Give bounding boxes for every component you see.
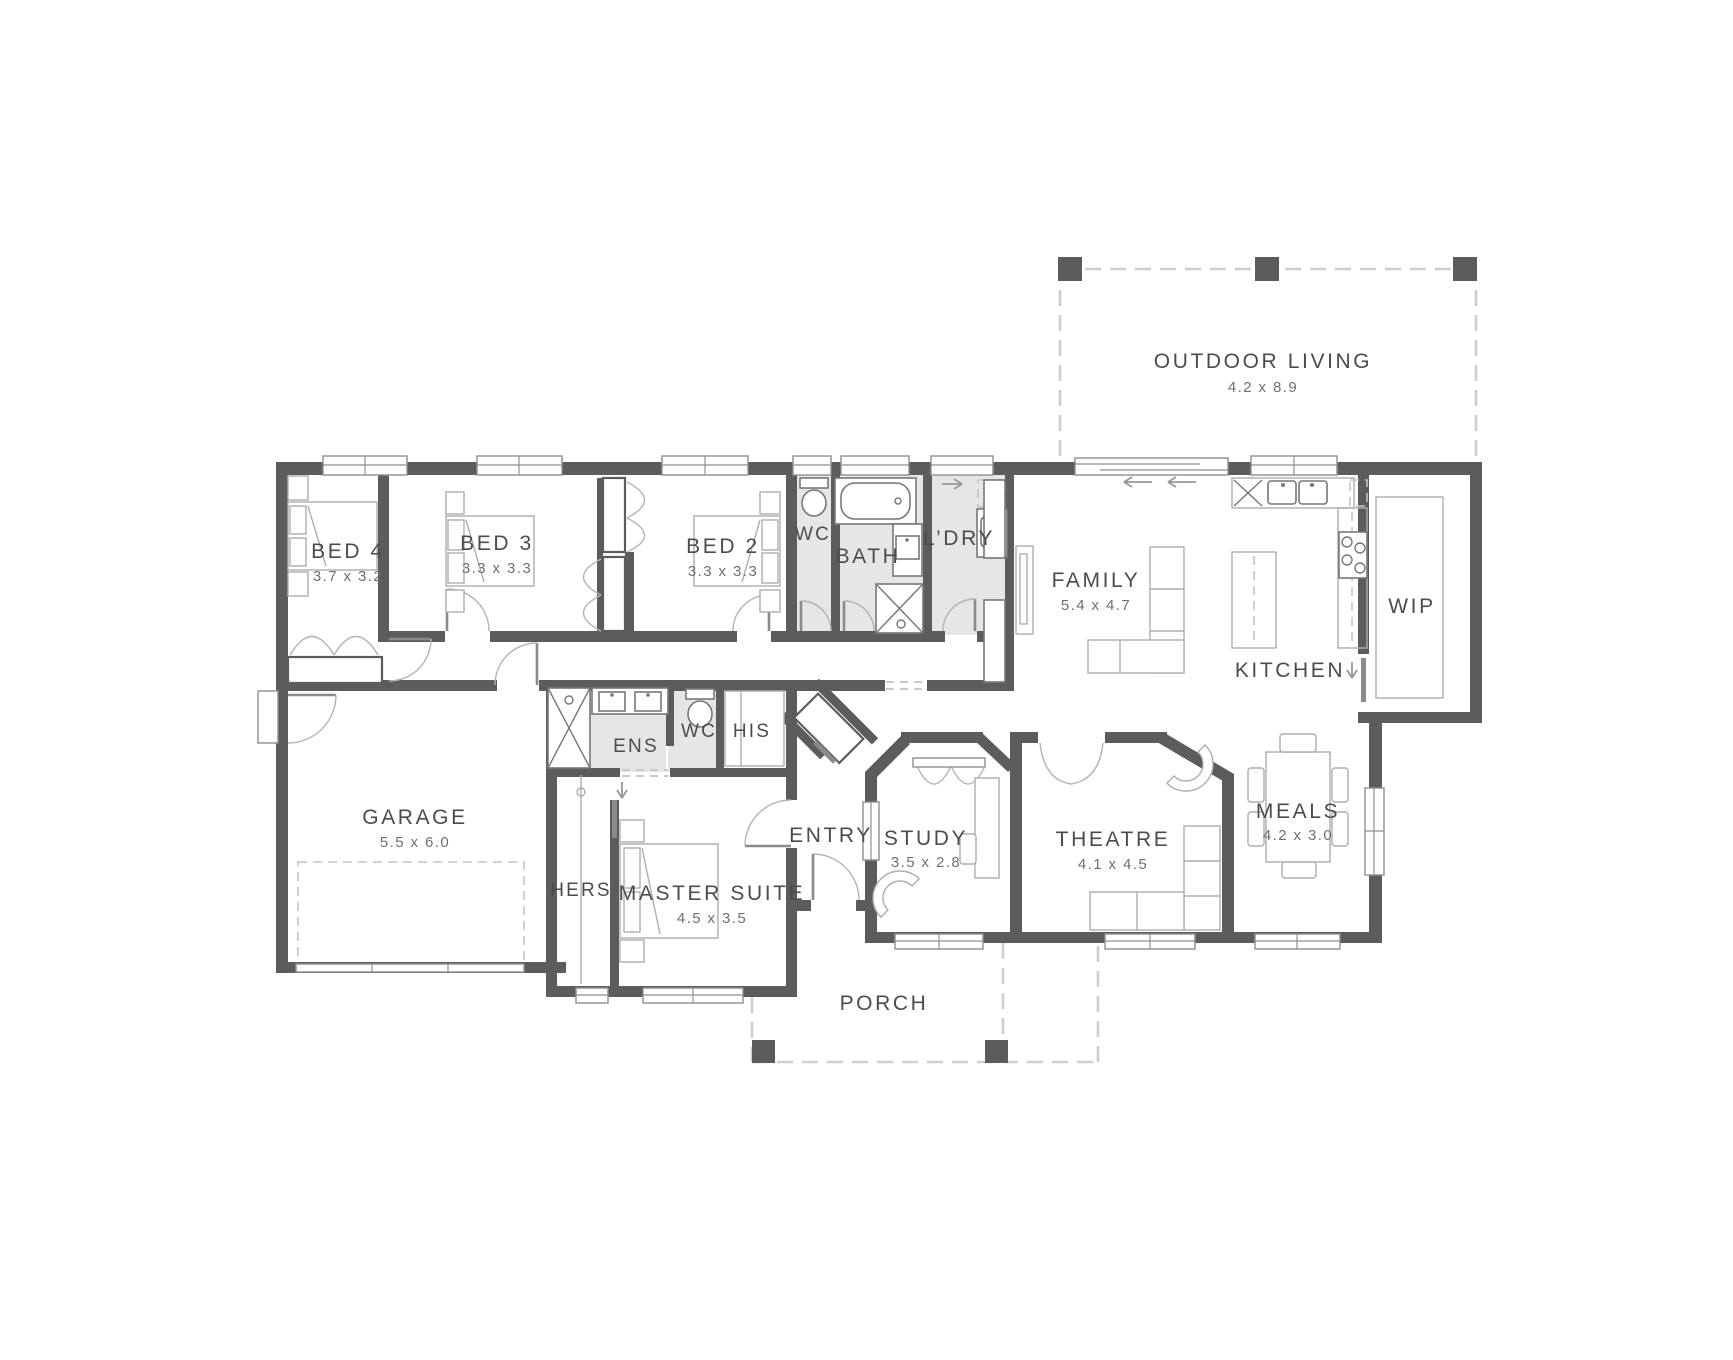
door-hers-slider [612, 800, 617, 838]
room-label-garage: GARAGE [362, 806, 467, 829]
room-dims-bed2: 3.3 x 3.3 [688, 563, 758, 580]
toilet-main [800, 478, 828, 516]
room-label-his: HIS [733, 721, 771, 742]
door-wip-slider [1361, 658, 1366, 702]
master-entry-arrow [617, 782, 627, 798]
window-master [643, 988, 743, 1003]
room-label-family: FAMILY [1052, 569, 1141, 592]
window-bed2 [662, 456, 748, 475]
room-label-bed4: BED 4 [311, 540, 385, 563]
room-dims-family: 5.4 x 4.7 [1061, 597, 1131, 614]
room-label-theatre: THEATRE [1056, 828, 1171, 851]
window-bed4 [323, 456, 407, 475]
bifold-bed2-robe [627, 482, 645, 552]
window-study [895, 934, 983, 949]
window-hers [576, 988, 608, 1003]
window-laundry [931, 456, 993, 475]
study-bay-sill [913, 758, 985, 767]
room-label-bed3: BED 3 [460, 532, 534, 555]
room-label-meals: MEALS [1256, 800, 1340, 823]
room-label-ens: ENS [613, 736, 659, 757]
cooktop [1339, 532, 1367, 578]
room-label-hers: HERS [550, 880, 612, 901]
floor-plan-canvas: OUTDOOR LIVING 4.2 x 8.9 BED 4 3.7 x 3.2… [0, 0, 1733, 1360]
door-front [813, 854, 859, 900]
bathtub [835, 478, 916, 524]
kitchen-island [1232, 552, 1276, 648]
room-label-wc-main: WC [795, 524, 831, 545]
room-label-study: STUDY [884, 827, 968, 850]
stacker-door-family [1075, 458, 1228, 487]
window-bath [841, 456, 909, 475]
garage-door [296, 964, 524, 972]
room-label-outdoor-living: OUTDOOR LIVING [1154, 350, 1372, 373]
room-dims-meals: 4.2 x 3.0 [1263, 827, 1333, 844]
wip-entry-arrow [1347, 662, 1357, 678]
room-dims-bed4: 3.7 x 3.2 [313, 568, 383, 585]
floor-plan: OUTDOOR LIVING 4.2 x 8.9 BED 4 3.7 x 3.2… [0, 0, 1733, 1360]
window-kitchen [1251, 456, 1337, 475]
room-label-bed2: BED 2 [686, 535, 760, 558]
bath-shower [876, 584, 923, 633]
room-label-wc-ens: WC [681, 721, 717, 742]
room-dims-theatre: 4.1 x 4.5 [1078, 856, 1148, 873]
ens-vanity [592, 688, 668, 714]
door-master [745, 800, 791, 846]
room-label-master: MASTER SUITE [619, 882, 805, 905]
door-garage-side [258, 691, 336, 743]
room-dims-garage: 5.5 x 6.0 [380, 834, 450, 851]
door-bed4 [389, 639, 431, 681]
window-bed3 [477, 456, 562, 475]
window-meals [1365, 788, 1384, 875]
room-label-bath: BATH [836, 545, 901, 568]
room-dims-study: 3.5 x 2.8 [891, 854, 961, 871]
post [985, 1040, 1008, 1063]
garage-car-space [298, 862, 524, 968]
broom-cupboard [984, 600, 1005, 682]
door-garage-hall [495, 643, 537, 685]
post [1058, 257, 1082, 281]
room-dims-bed3: 3.3 x 3.3 [462, 560, 532, 577]
family-tv-unit [1016, 546, 1033, 634]
room-dims-outdoor-living: 4.2 x 8.9 [1228, 379, 1298, 396]
window-theatre-1 [1105, 934, 1195, 949]
room-label-porch: PORCH [840, 992, 929, 1015]
room-label-wip: WIP [1388, 595, 1435, 618]
post [1255, 257, 1279, 281]
bifold-bed4-robe [290, 637, 378, 656]
room-label-entry: ENTRY [789, 824, 873, 847]
window-wc [793, 456, 831, 475]
door-theatre-double [1040, 743, 1103, 784]
room-dims-master: 4.5 x 3.5 [677, 910, 747, 927]
ens-shower [548, 688, 590, 768]
room-label-laundry: L’DRY [923, 527, 995, 550]
post [752, 1040, 775, 1063]
room-label-kitchen: KITCHEN [1235, 659, 1345, 682]
window-theatre-2 [1255, 934, 1340, 949]
post [1453, 257, 1477, 281]
